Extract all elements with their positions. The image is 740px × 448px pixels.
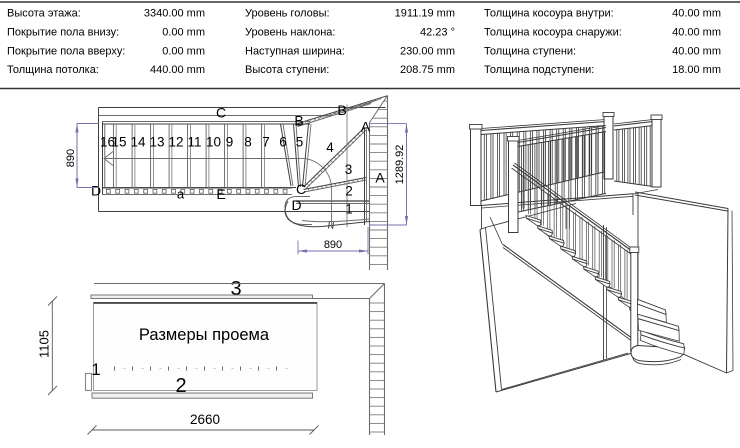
- svg-text:A: A: [361, 119, 371, 135]
- svg-text:D: D: [291, 197, 301, 213]
- svg-text:42.23 °: 42.23 °: [420, 27, 455, 39]
- svg-text:a: a: [177, 187, 185, 202]
- svg-text:B: B: [337, 102, 346, 118]
- svg-text:0.00 mm: 0.00 mm: [162, 27, 205, 39]
- svg-text:9: 9: [226, 135, 234, 150]
- svg-text:D: D: [91, 183, 101, 199]
- svg-text:Уровень наклона:: Уровень наклона:: [245, 27, 335, 39]
- svg-text:Толщина косоура внутри:: Толщина косоура внутри:: [484, 8, 614, 20]
- svg-text:208.75 mm: 208.75 mm: [400, 64, 455, 76]
- svg-text:1105: 1105: [37, 330, 52, 358]
- svg-text:440.00 mm: 440.00 mm: [150, 64, 205, 76]
- svg-text:18.00 mm: 18.00 mm: [672, 64, 721, 76]
- svg-text:E: E: [216, 186, 225, 202]
- svg-text:B: B: [294, 113, 303, 129]
- svg-text:1: 1: [345, 202, 353, 217]
- svg-text:4: 4: [326, 140, 334, 155]
- svg-text:A: A: [375, 170, 385, 186]
- svg-text:Наступная ширина:: Наступная ширина:: [245, 46, 345, 58]
- svg-text:890: 890: [324, 239, 342, 251]
- svg-text:1289.92: 1289.92: [394, 145, 406, 185]
- svg-text:Высота этажа:: Высота этажа:: [7, 8, 81, 20]
- svg-text:1911.19 mm: 1911.19 mm: [395, 8, 455, 20]
- svg-text:3340.00 mm: 3340.00 mm: [144, 8, 205, 20]
- svg-text:Толщина косоура снаружи:: Толщина косоура снаружи:: [484, 27, 622, 39]
- svg-text:Размеры проема: Размеры проема: [139, 326, 270, 344]
- svg-text:14: 14: [130, 135, 146, 150]
- svg-text:6: 6: [279, 135, 287, 150]
- svg-text:7: 7: [262, 135, 270, 150]
- svg-text:0.00 mm: 0.00 mm: [162, 46, 205, 58]
- svg-text:40.00 mm: 40.00 mm: [672, 27, 721, 39]
- svg-text:40.00 mm: 40.00 mm: [672, 8, 721, 20]
- svg-text:Толщина ступени:: Толщина ступени:: [484, 46, 576, 58]
- svg-text:2660: 2660: [190, 412, 220, 427]
- svg-text:12: 12: [168, 135, 183, 150]
- svg-text:40.00 mm: 40.00 mm: [672, 46, 721, 58]
- svg-text:11: 11: [187, 135, 201, 150]
- svg-text:Толщина потолка:: Толщина потолка:: [7, 64, 99, 76]
- svg-text:15: 15: [111, 135, 126, 150]
- svg-text:5: 5: [296, 135, 304, 150]
- svg-text:890: 890: [65, 149, 77, 167]
- svg-text:Высота ступени:: Высота ступени:: [245, 64, 329, 76]
- svg-text:Покрытие пола внизу:: Покрытие пола внизу:: [7, 27, 119, 39]
- svg-text:Толщина подступени:: Толщина подступени:: [484, 64, 594, 76]
- svg-text:13: 13: [149, 135, 164, 150]
- svg-text:3: 3: [345, 162, 353, 177]
- svg-text:1: 1: [91, 360, 100, 379]
- svg-text:2: 2: [345, 184, 353, 199]
- svg-text:C: C: [296, 181, 306, 197]
- svg-text:Уровень головы:: Уровень головы:: [245, 8, 330, 20]
- svg-text:10: 10: [206, 135, 221, 150]
- svg-text:230.00 mm: 230.00 mm: [400, 46, 455, 58]
- svg-text:Покрытие пола вверху:: Покрытие пола вверху:: [7, 46, 125, 58]
- svg-text:8: 8: [244, 135, 252, 150]
- svg-text:C: C: [216, 105, 226, 121]
